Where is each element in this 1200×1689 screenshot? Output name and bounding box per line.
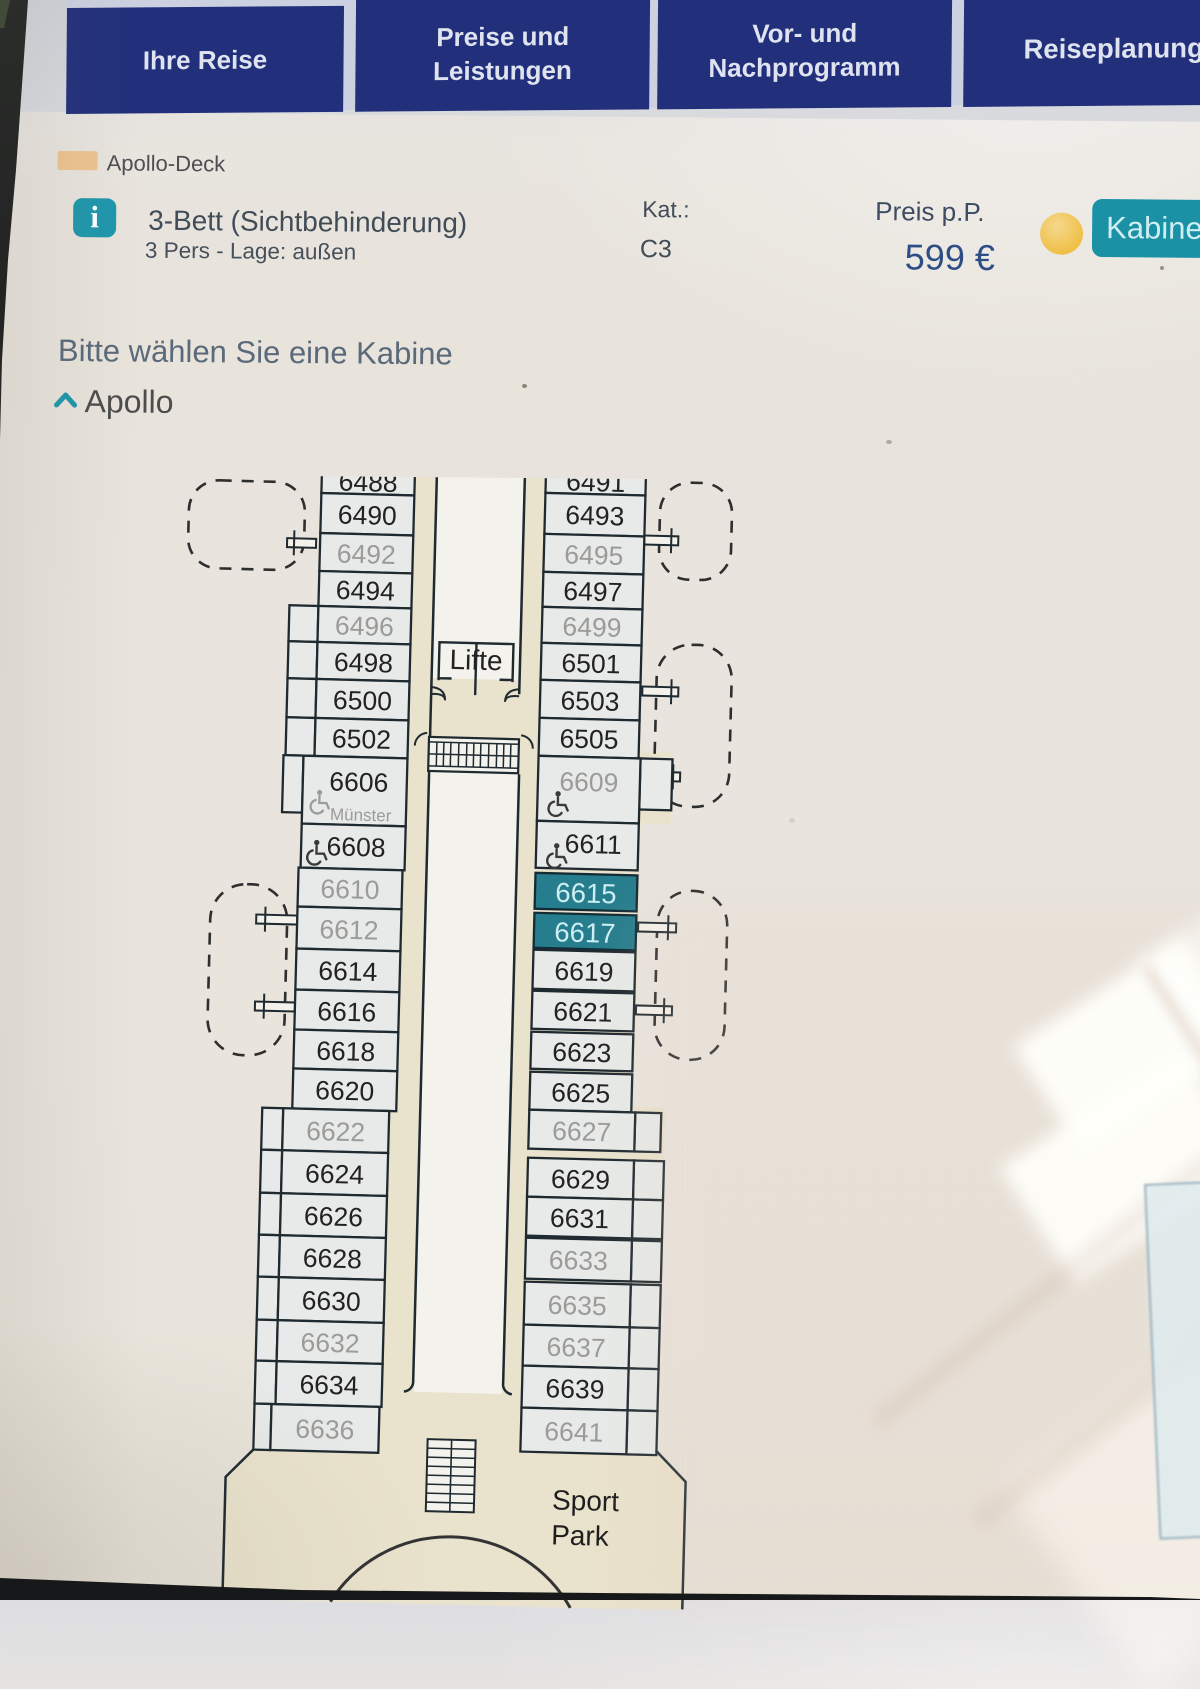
svg-text:6495: 6495 (564, 539, 624, 571)
svg-text:6501: 6501 (561, 648, 621, 680)
svg-text:6606: 6606 (329, 766, 389, 798)
svg-text:6637: 6637 (546, 1332, 606, 1364)
svg-text:6492: 6492 (336, 538, 396, 570)
svg-text:6631: 6631 (550, 1203, 610, 1235)
svg-text:6497: 6497 (563, 576, 623, 608)
svg-text:6620: 6620 (315, 1075, 375, 1107)
svg-text:6616: 6616 (317, 996, 377, 1028)
svg-text:6612: 6612 (319, 914, 379, 946)
svg-text:6633: 6633 (549, 1245, 609, 1277)
svg-text:6629: 6629 (551, 1164, 611, 1196)
svg-text:6635: 6635 (547, 1290, 607, 1322)
svg-text:Münster: Münster (330, 805, 392, 826)
svg-text:6627: 6627 (552, 1116, 612, 1148)
svg-text:6505: 6505 (559, 723, 619, 755)
svg-text:6494: 6494 (335, 575, 395, 607)
svg-text:6502: 6502 (332, 723, 392, 755)
svg-text:6619: 6619 (554, 956, 614, 988)
svg-text:6499: 6499 (562, 611, 622, 643)
svg-text:6618: 6618 (316, 1036, 376, 1068)
svg-text:6609: 6609 (559, 766, 619, 798)
svg-text:6490: 6490 (337, 499, 397, 531)
svg-text:6615: 6615 (555, 877, 617, 910)
svg-text:6617: 6617 (554, 916, 616, 949)
svg-text:6622: 6622 (306, 1116, 366, 1148)
svg-text:6621: 6621 (553, 996, 613, 1028)
svg-text:6624: 6624 (305, 1158, 365, 1190)
svg-text:6503: 6503 (560, 685, 620, 717)
svg-text:6608: 6608 (326, 831, 386, 863)
svg-text:6641: 6641 (544, 1416, 604, 1448)
svg-text:6614: 6614 (318, 956, 378, 988)
svg-text:6626: 6626 (304, 1201, 364, 1233)
svg-text:Sport: Sport (552, 1484, 620, 1517)
svg-text:6628: 6628 (302, 1243, 362, 1275)
svg-text:Park: Park (551, 1519, 610, 1552)
svg-text:6610: 6610 (320, 874, 380, 906)
svg-text:6639: 6639 (545, 1373, 605, 1405)
svg-text:6493: 6493 (565, 500, 625, 532)
svg-text:6623: 6623 (552, 1037, 612, 1069)
svg-text:6498: 6498 (334, 647, 394, 679)
svg-text:6496: 6496 (335, 610, 395, 642)
svg-text:6625: 6625 (551, 1077, 611, 1109)
svg-text:6500: 6500 (333, 685, 393, 717)
svg-text:Lifte: Lifte (449, 644, 503, 676)
svg-text:6611: 6611 (564, 829, 622, 860)
